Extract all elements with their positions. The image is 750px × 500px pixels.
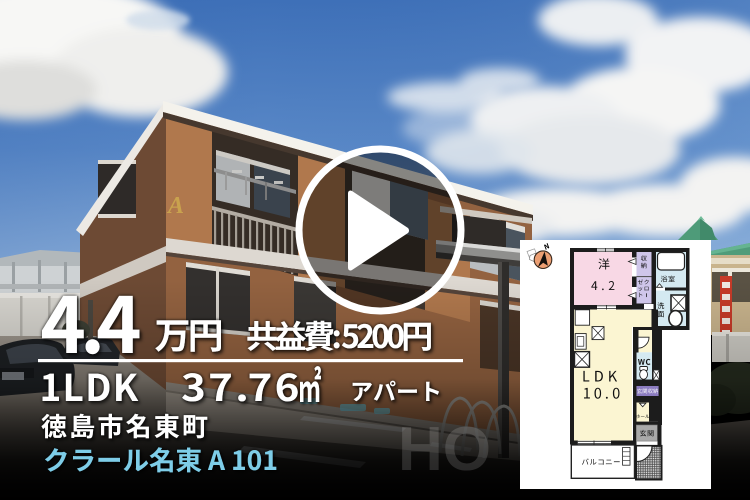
svg-text:A: A (166, 193, 184, 219)
svg-text:HO: HO (398, 415, 491, 484)
